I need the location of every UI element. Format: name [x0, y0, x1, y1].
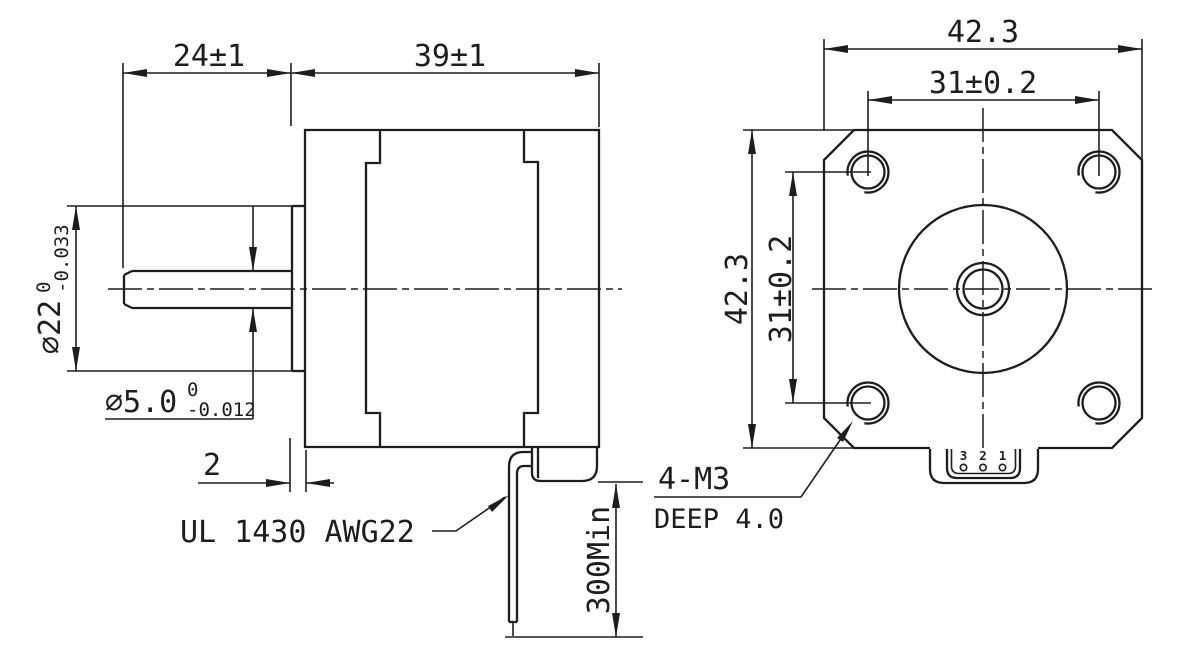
arrowhead — [612, 613, 620, 637]
arrowhead — [824, 45, 848, 53]
dim-lead-length: 300Min — [505, 482, 643, 637]
arrowhead — [1075, 96, 1099, 104]
arrowhead — [748, 424, 756, 448]
dim-boss-thickness-label: 2 — [203, 448, 221, 483]
mounting-hole-callout-line2: DEEP 4.0 — [654, 504, 784, 535]
dim-hole-pitch-h-label: 31±0.2 — [929, 66, 1037, 101]
connector-pin-3-hole — [960, 464, 966, 470]
wire-callout-leader — [432, 497, 505, 531]
connector-pin-2: 2 — [979, 448, 987, 471]
connector-pin-3-label: 3 — [960, 448, 968, 463]
arrowhead — [789, 172, 797, 196]
arrowhead — [868, 96, 892, 104]
arrowhead — [72, 206, 80, 230]
dim-hole-pitch-vertical: 31±0.2 — [764, 172, 871, 403]
front-view-center-lines — [812, 108, 1154, 449]
arrowhead — [575, 69, 599, 77]
dim-pilot-diameter-label: ⌀22 — [33, 300, 68, 354]
arrowhead — [267, 69, 291, 77]
connector-pin-1: 1 — [999, 448, 1007, 471]
arrowhead — [789, 379, 797, 403]
arrowhead — [249, 247, 257, 271]
connector-pin-1-label: 1 — [999, 448, 1007, 463]
side-view: 24±1 39±1 ⌀22 0 -0.033 — [33, 39, 643, 637]
arrowhead — [306, 479, 330, 487]
arrowhead — [249, 308, 257, 332]
side-view-connector — [532, 448, 597, 481]
mounting-hole-callout-line1: 4-M3 — [658, 462, 730, 497]
arrowhead — [488, 495, 509, 512]
dim-pilot-diameter-tol-lower: -0.033 — [51, 224, 73, 293]
arrowhead — [291, 69, 315, 77]
dim-body-length-label: 39±1 — [414, 39, 486, 74]
body-outline — [305, 130, 599, 447]
side-view-body — [305, 130, 599, 447]
front-view: 3 2 1 42.3 — [654, 15, 1154, 535]
wire-callout-label: UL 1430 AWG22 — [180, 515, 415, 550]
connector-pin-2-hole — [980, 464, 986, 470]
arrowhead — [612, 484, 620, 508]
dim-shaft-diameter-tol-lower: -0.012 — [187, 399, 256, 421]
dim-shaft-section-label: 24±1 — [173, 39, 245, 74]
dim-lead-length-label: 300Min — [582, 506, 617, 614]
dim-height-label: 42.3 — [720, 253, 755, 325]
dim-hole-pitch-v-label: 31±0.2 — [764, 235, 799, 343]
motor-dimension-drawing: 24±1 39±1 ⌀22 0 -0.033 — [0, 0, 1177, 659]
mounting-hole-bottom-right — [1078, 383, 1119, 424]
dim-width-label: 42.3 — [947, 15, 1019, 50]
arrowhead — [72, 347, 80, 371]
wire-callout: UL 1430 AWG22 — [180, 495, 509, 550]
dim-shaft-diameter-tol-upper: 0 — [187, 379, 198, 401]
arrowhead — [266, 479, 290, 487]
connector-pin-2-label: 2 — [979, 448, 987, 463]
connector-pin-3: 3 — [960, 448, 968, 471]
dim-shaft-diameter-label: ⌀5.0 — [105, 385, 177, 420]
front-view-connector: 3 2 1 — [930, 448, 1038, 483]
connector-pin-1-hole — [999, 464, 1005, 470]
side-view-lead-wire — [509, 452, 533, 636]
drawing-canvas: 24±1 39±1 ⌀22 0 -0.033 — [0, 0, 1177, 659]
arrowhead — [123, 69, 147, 77]
arrowhead — [1118, 45, 1142, 53]
dim-shaft-diameter: ⌀5.0 0 -0.012 — [105, 206, 257, 421]
dim-shaft-section: 24±1 — [123, 39, 291, 268]
arrowhead — [748, 130, 756, 154]
dim-body-length: 39±1 — [291, 39, 599, 127]
